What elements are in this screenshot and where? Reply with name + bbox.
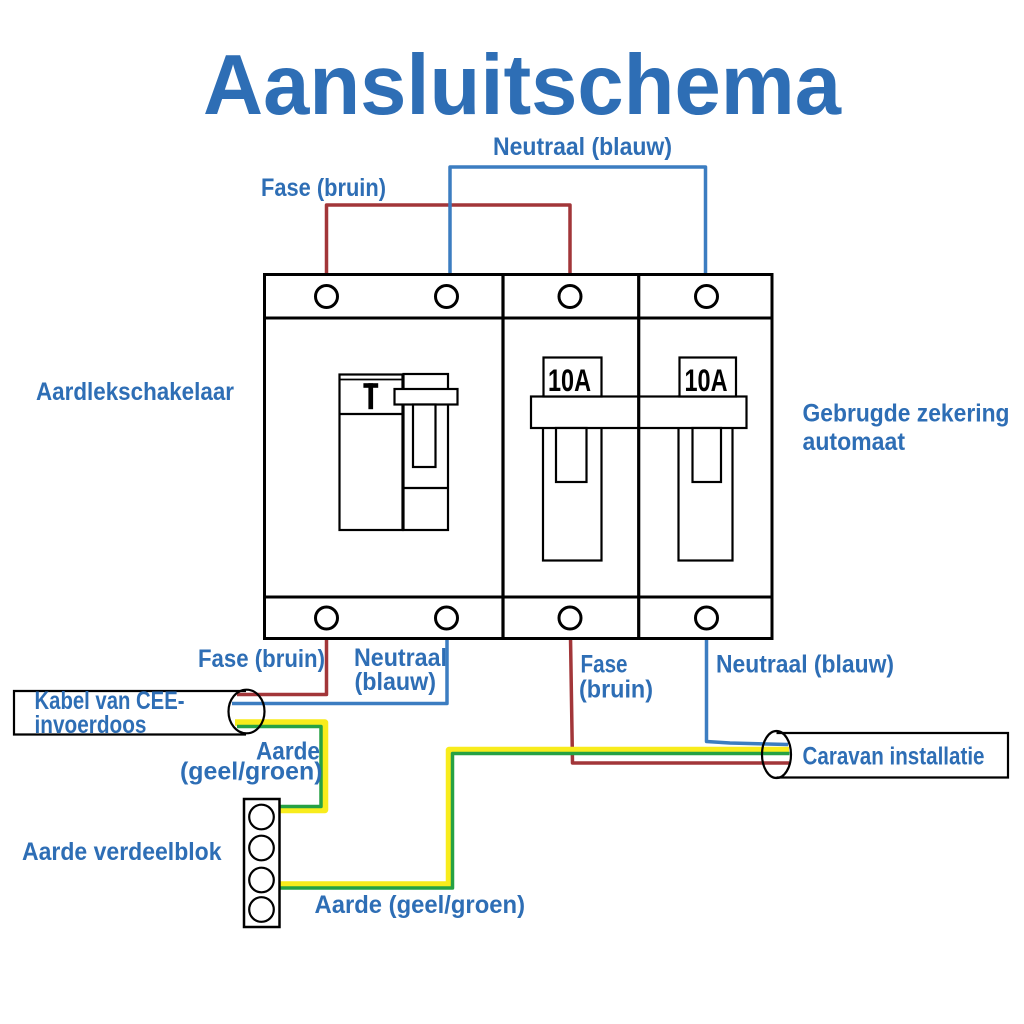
svg-text:Aarde (geel/groen): Aarde (geel/groen) — [315, 891, 526, 919]
svg-text:(blauw): (blauw) — [355, 668, 437, 696]
svg-text:Fase: Fase — [581, 651, 628, 679]
svg-text:Aansluitschema: Aansluitschema — [203, 38, 842, 133]
svg-text:Neutraal (blauw): Neutraal (blauw) — [716, 651, 894, 679]
svg-text:Caravan installatie: Caravan installatie — [803, 743, 985, 771]
svg-text:10A: 10A — [548, 362, 591, 398]
svg-text:Fase (bruin): Fase (bruin) — [261, 174, 386, 202]
svg-text:automaat: automaat — [803, 428, 906, 456]
svg-text:(bruin): (bruin) — [579, 676, 653, 704]
svg-text:10A: 10A — [685, 362, 728, 398]
svg-text:Gebrugde zekering: Gebrugde zekering — [803, 400, 1010, 428]
svg-text:Aarde verdeelblok: Aarde verdeelblok — [22, 838, 222, 866]
svg-text:Neutraal (blauw): Neutraal (blauw) — [493, 133, 672, 161]
svg-text:Aardlekschakelaar: Aardlekschakelaar — [36, 378, 234, 406]
svg-text:(geel/groen): (geel/groen) — [180, 758, 323, 786]
svg-text:Fase (bruin): Fase (bruin) — [198, 645, 325, 673]
svg-text:invoerdoos: invoerdoos — [35, 711, 147, 739]
